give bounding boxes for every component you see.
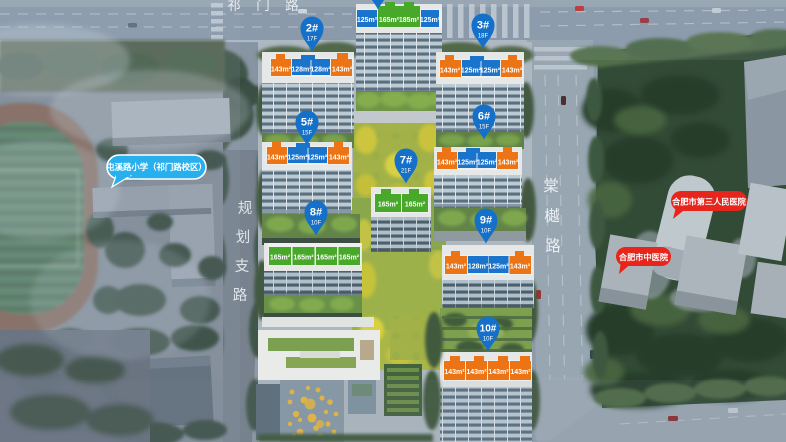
svg-text:143m²: 143m²: [440, 68, 461, 75]
svg-text:143m²: 143m²: [267, 155, 288, 162]
svg-text:125m²: 125m²: [488, 264, 509, 271]
svg-text:143m²: 143m²: [498, 160, 519, 167]
svg-text:合肥市中医院: 合肥市中医院: [618, 252, 669, 262]
svg-text:125m²: 125m²: [420, 17, 441, 24]
svg-text:185m²: 185m²: [399, 17, 420, 24]
svg-text:143m²: 143m²: [466, 369, 487, 376]
svg-text:规: 规: [238, 200, 253, 217]
svg-text:支: 支: [235, 258, 250, 275]
svg-text:门: 门: [256, 0, 270, 13]
svg-text:143m²: 143m²: [510, 264, 531, 271]
svg-text:143m²: 143m²: [446, 264, 467, 271]
svg-text:3#: 3#: [477, 20, 489, 32]
svg-text:125m²: 125m²: [457, 160, 478, 167]
svg-text:路: 路: [233, 287, 248, 304]
svg-text:165m²: 165m²: [379, 17, 400, 24]
svg-text:5#: 5#: [301, 117, 313, 129]
svg-text:路: 路: [545, 237, 561, 255]
svg-text:125m²: 125m²: [287, 155, 308, 162]
svg-text:9#: 9#: [480, 215, 492, 227]
svg-text:8#: 8#: [310, 207, 322, 219]
svg-text:125m²: 125m²: [480, 68, 501, 75]
svg-text:2#: 2#: [306, 23, 318, 35]
svg-text:10#: 10#: [480, 324, 497, 335]
svg-text:15F: 15F: [302, 131, 313, 137]
svg-text:165m²: 165m²: [405, 202, 426, 209]
svg-text:合肥市第三人民医院: 合肥市第三人民医院: [671, 197, 747, 207]
svg-text:165m²: 165m²: [316, 255, 337, 262]
svg-text:祁: 祁: [227, 0, 241, 13]
svg-text:棠: 棠: [543, 177, 559, 195]
svg-text:7#: 7#: [400, 155, 412, 167]
svg-text:18F: 18F: [478, 34, 489, 40]
svg-text:划: 划: [236, 229, 251, 246]
svg-text:143m²: 143m²: [332, 67, 353, 74]
svg-text:路: 路: [285, 0, 299, 13]
svg-text:143m²: 143m²: [437, 160, 458, 167]
svg-text:15F: 15F: [479, 125, 490, 131]
svg-text:143m²: 143m²: [510, 369, 531, 376]
svg-text:165m²: 165m²: [293, 255, 314, 262]
svg-text:143m²: 143m²: [502, 68, 523, 75]
svg-text:143m²: 143m²: [271, 67, 292, 74]
svg-text:143m²: 143m²: [329, 155, 350, 162]
svg-text:143m²: 143m²: [444, 369, 465, 376]
svg-text:125m²: 125m²: [461, 68, 482, 75]
svg-text:10F: 10F: [481, 229, 492, 235]
svg-text:143m²: 143m²: [488, 369, 509, 376]
svg-text:165m²: 165m²: [378, 202, 399, 209]
svg-text:10F: 10F: [483, 337, 494, 343]
svg-text:10F: 10F: [311, 221, 322, 227]
svg-text:125m²: 125m²: [477, 160, 498, 167]
svg-text:屯溪路小学（祁门路校区）: 屯溪路小学（祁门路校区）: [106, 162, 207, 172]
svg-text:6#: 6#: [478, 111, 490, 123]
svg-text:165m²: 165m²: [270, 255, 291, 262]
svg-text:128m²: 128m²: [468, 264, 489, 271]
svg-text:21F: 21F: [401, 169, 412, 175]
svg-text:樾: 樾: [544, 206, 560, 225]
svg-text:17F: 17F: [307, 37, 318, 43]
svg-text:125m²: 125m²: [357, 17, 378, 24]
svg-text:165m²: 165m²: [339, 255, 360, 262]
svg-text:125m²: 125m²: [307, 155, 328, 162]
svg-text:128m²: 128m²: [310, 67, 331, 74]
svg-text:128m²: 128m²: [291, 67, 312, 74]
